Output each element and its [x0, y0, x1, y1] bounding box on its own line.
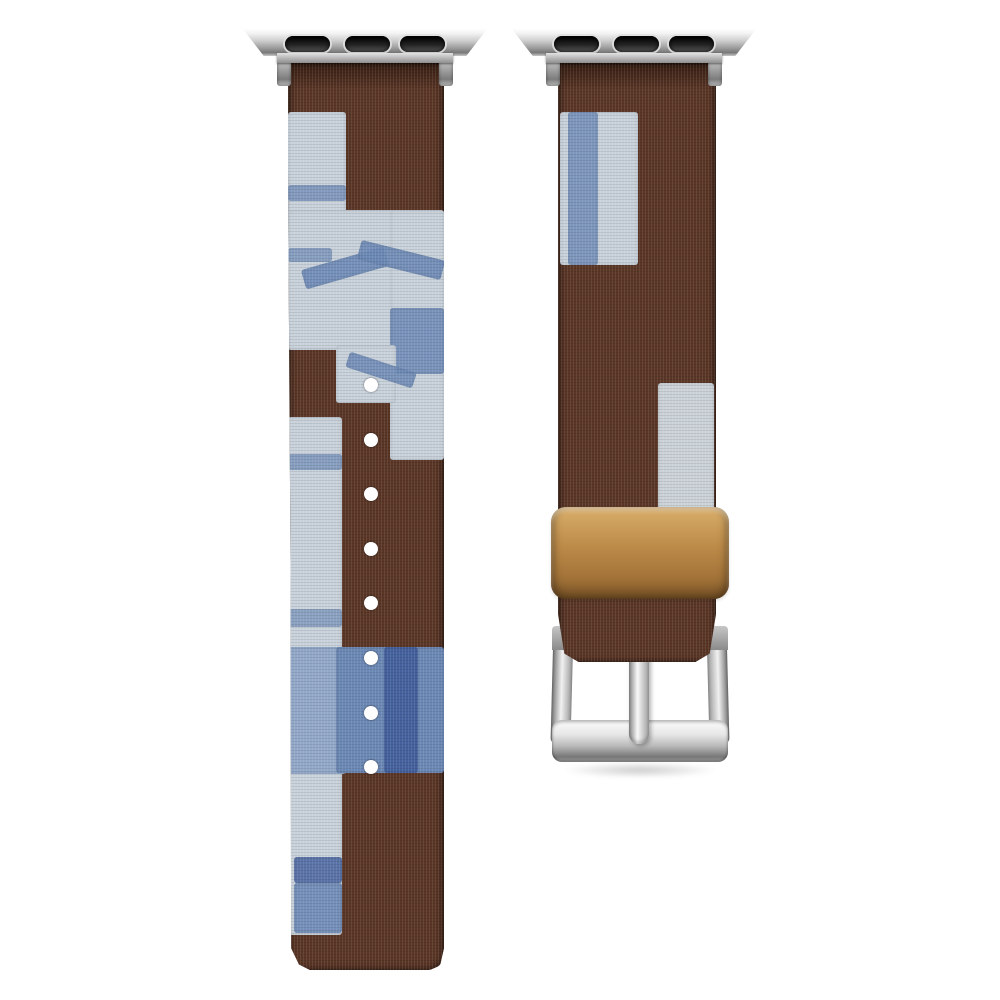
- buckle-shadow: [562, 762, 718, 778]
- spring-bar-slots: [512, 28, 756, 56]
- spring-bar-slot: [285, 36, 330, 52]
- lug-adapter-left: [243, 26, 487, 88]
- fabric-patch: [568, 112, 598, 265]
- adjustment-hole: [364, 760, 378, 774]
- spring-bar-slot: [554, 36, 599, 52]
- fabric-patch: [658, 383, 714, 516]
- adjustment-hole: [364, 542, 378, 556]
- bracket-web: [546, 53, 722, 63]
- product-photo: [0, 0, 1000, 1000]
- spring-bar-slot: [400, 36, 445, 52]
- keeper-loop: [551, 507, 729, 599]
- adjustment-hole: [364, 651, 378, 665]
- spring-bar-slots: [243, 28, 487, 56]
- adjustment-hole: [364, 433, 378, 447]
- adjustment-hole: [364, 378, 378, 392]
- adjustment-holes: [288, 62, 444, 970]
- adjustment-hole: [364, 487, 378, 501]
- adjustment-hole: [364, 706, 378, 720]
- spring-bar-slot: [614, 36, 659, 52]
- spring-bar-slot: [669, 36, 714, 52]
- left-strap-fabric: [288, 62, 444, 970]
- spring-bar-slot: [345, 36, 390, 52]
- lug-adapter-right: [512, 26, 756, 88]
- adjustment-hole: [364, 596, 378, 610]
- bracket-web: [277, 53, 453, 63]
